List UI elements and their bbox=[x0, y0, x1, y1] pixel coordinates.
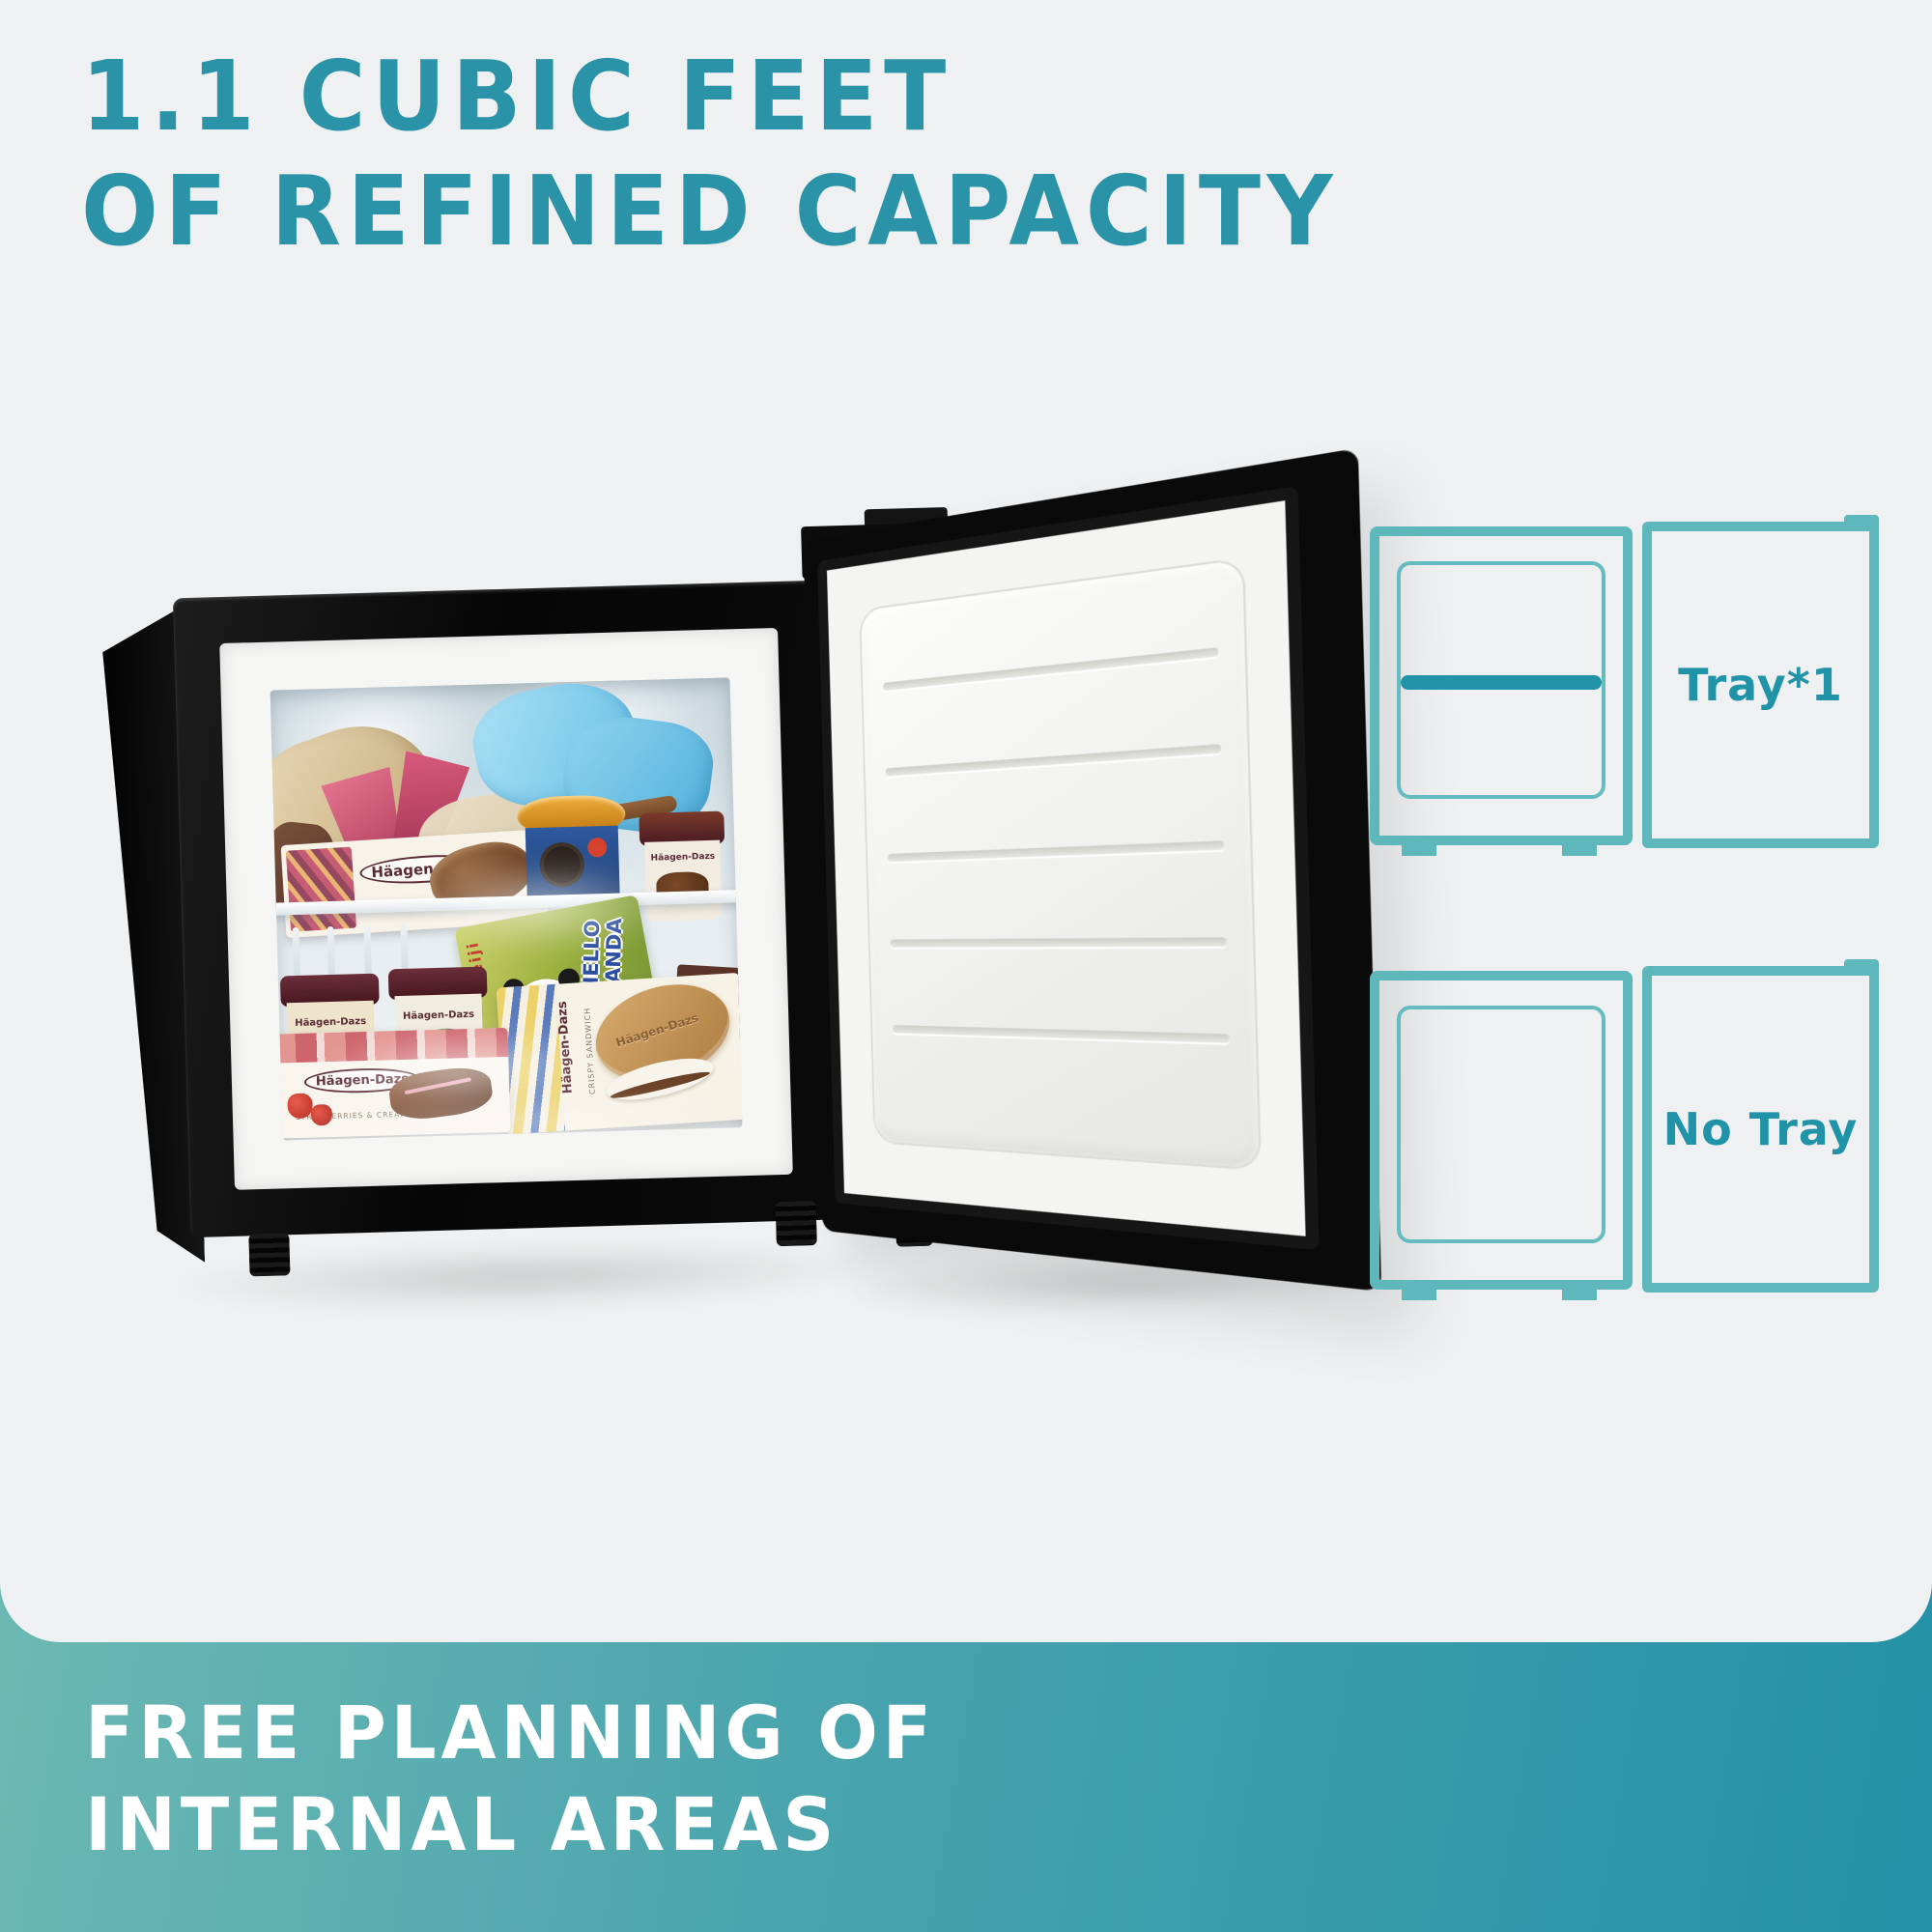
diagram-door-opening bbox=[1397, 1006, 1605, 1243]
diagram-open-door: Tray*1 bbox=[1642, 522, 1879, 848]
headline-line1: 1.1 CUBIC FEET bbox=[81, 39, 1339, 154]
diagram-foot bbox=[1562, 1290, 1597, 1300]
freezer-foot bbox=[776, 1201, 817, 1246]
haagendazs-logo: Häagen-Dazs bbox=[295, 1016, 366, 1029]
diagram-label: Tray*1 bbox=[1652, 659, 1869, 711]
diagram-foot bbox=[1402, 1290, 1436, 1300]
box-zigzag-art bbox=[286, 847, 356, 932]
freezer-photo: Häagen-Dazs CHOCOLATE CHOC ALMOND Häagen… bbox=[83, 382, 1405, 1412]
banner-line1: FREE PLANNING OF bbox=[85, 1687, 936, 1778]
banner-line2: INTERNAL AREAS bbox=[85, 1778, 936, 1870]
haagendazs-logo: Häagen-Dazs bbox=[650, 852, 715, 864]
product-infographic: 1.1 CUBIC FEET OF REFINED CAPACITY Hä bbox=[0, 0, 1932, 1932]
headline-line2: OF REFINED CAPACITY bbox=[81, 154, 1339, 269]
diagram-foot bbox=[1562, 845, 1597, 856]
diagram-with-tray: Tray*1 bbox=[1367, 512, 1879, 869]
door-groove bbox=[893, 1025, 1230, 1043]
diagram-open-door: No Tray bbox=[1642, 966, 1879, 1293]
door-groove bbox=[886, 744, 1222, 776]
freezer-door bbox=[803, 448, 1381, 1292]
diagram-label: No Tray bbox=[1652, 1103, 1869, 1155]
diagram-tray-bar bbox=[1401, 675, 1602, 690]
haagendazs-embossed: Häagen-Dazs bbox=[614, 1010, 700, 1049]
diagram-freezer-body bbox=[1370, 971, 1633, 1290]
banner-title: FREE PLANNING OF INTERNAL AREAS bbox=[85, 1687, 936, 1870]
door-liner bbox=[817, 486, 1320, 1250]
door-groove bbox=[888, 840, 1224, 862]
freezer-foot bbox=[248, 1233, 290, 1276]
haagendazs-logo: Häagen-Dazs bbox=[403, 1009, 474, 1022]
diagram-foot bbox=[1402, 845, 1436, 856]
door-inner-panel bbox=[861, 559, 1259, 1169]
diagram-freezer-body bbox=[1370, 526, 1633, 845]
diagram-hinge-tab bbox=[1844, 515, 1879, 530]
freezer-interior: Häagen-Dazs CHOCOLATE CHOC ALMOND Häagen… bbox=[270, 677, 743, 1140]
headline: 1.1 CUBIC FEET OF REFINED CAPACITY bbox=[81, 39, 1339, 269]
door-groove bbox=[883, 647, 1219, 691]
diagram-no-tray: No Tray bbox=[1367, 956, 1879, 1314]
door-groove bbox=[890, 937, 1227, 947]
diagram-hinge-tab bbox=[1844, 959, 1879, 975]
